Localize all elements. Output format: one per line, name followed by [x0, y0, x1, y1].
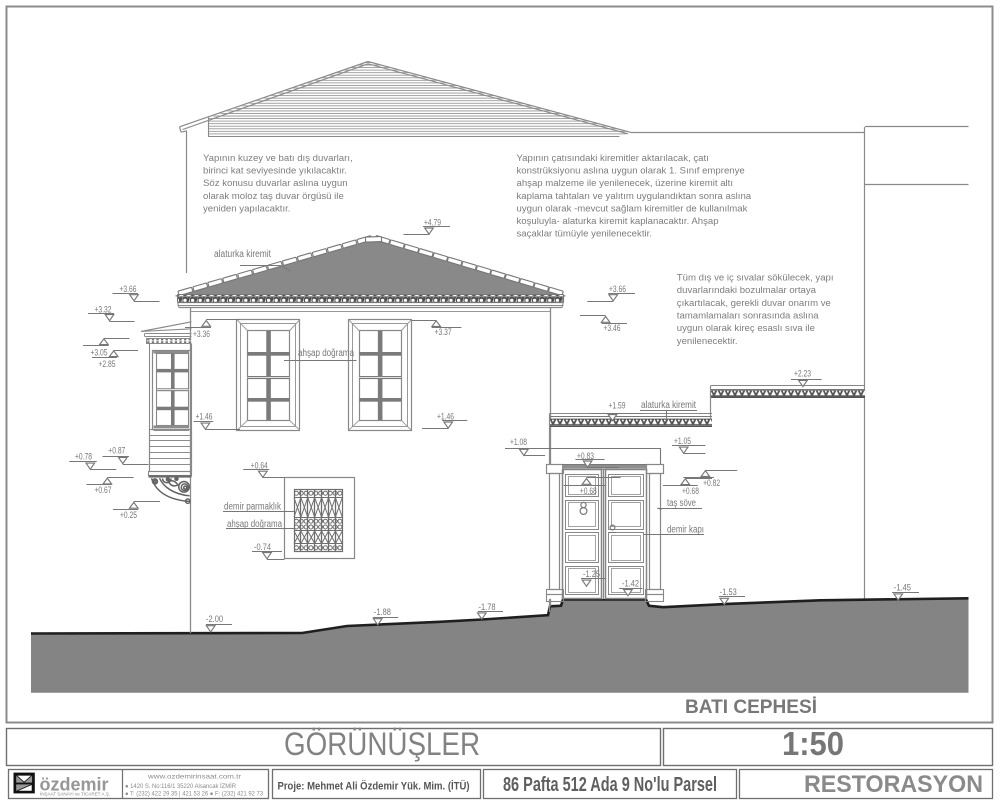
svg-text:yenilenecektir.: yenilenecektir.: [677, 336, 738, 347]
svg-text:+2.85: +2.85: [99, 359, 116, 369]
svg-text:+1.05: +1.05: [674, 436, 691, 446]
svg-text:demir parmaklık: demir parmaklık: [224, 502, 281, 513]
svg-text:birinci kat seviyesinde yıkıla: birinci kat seviyesinde yıkılacaktır.: [203, 165, 347, 176]
svg-text:-1.53: -1.53: [720, 587, 737, 597]
svg-text:+0.78: +0.78: [75, 451, 92, 461]
svg-text:+0.64: +0.64: [251, 460, 268, 470]
svg-text:BATI CEPHESİ: BATI CEPHESİ: [685, 695, 817, 718]
svg-text:İNŞAAT SANAYİ ve TİCARET A.Ş.: İNŞAAT SANAYİ ve TİCARET A.Ş.: [40, 791, 110, 797]
svg-text:+0.82: +0.82: [703, 478, 720, 488]
svg-text:yeniden yapılacaktır.: yeniden yapılacaktır.: [203, 203, 290, 214]
svg-text:+0.67: +0.67: [95, 485, 112, 495]
svg-text:-1.78: -1.78: [479, 602, 496, 612]
svg-text:-1.42: -1.42: [622, 579, 639, 589]
svg-text:olarak moloz taş duvar örgüsü: olarak moloz taş duvar örgüsü ile: [203, 191, 344, 202]
svg-text:-0.74: -0.74: [254, 542, 271, 552]
svg-text:kaplama tahtaları ve yalıtım u: kaplama tahtaları ve yalıtım uygulandıkt…: [517, 191, 752, 202]
svg-text:alaturka kiremit: alaturka kiremit: [641, 400, 696, 411]
svg-text:● 1420 S. No:116/1 35220 Alsan: ● 1420 S. No:116/1 35220 Alsancak İZMİR: [125, 783, 236, 790]
svg-text:+0.25: +0.25: [120, 510, 137, 520]
svg-text:-1.88: -1.88: [374, 607, 391, 617]
svg-text:+3.66: +3.66: [609, 284, 626, 294]
svg-text:Söz konusu duvarlar aslına uyg: Söz konusu duvarlar aslına uygun: [203, 178, 348, 189]
svg-text:+4.79: +4.79: [424, 217, 441, 227]
svg-text:+3.36: +3.36: [193, 329, 210, 339]
svg-text:+3.66: +3.66: [120, 284, 137, 294]
svg-text:+3.32: +3.32: [95, 304, 112, 314]
svg-text:saçaklar tümüyle yenilenecekti: saçaklar tümüyle yenilenecektir.: [517, 229, 652, 240]
svg-text:-1.25: -1.25: [583, 569, 600, 579]
svg-text:+1.46: +1.46: [196, 412, 213, 422]
svg-text:● T: (232) 422 29 35 | 421 53: ● T: (232) 422 29 35 | 421 53 26 ● F: (2…: [125, 790, 264, 797]
svg-text:Yapının çatısındaki kiremitler: Yapının çatısındaki kiremitler aktarılac…: [517, 153, 709, 164]
svg-text:demir kapı: demir kapı: [667, 525, 704, 536]
svg-text:RESTORASYON: RESTORASYON: [804, 772, 983, 798]
svg-text:+3.46: +3.46: [604, 323, 621, 333]
svg-text:+1.59: +1.59: [609, 400, 626, 410]
svg-text:+0.68: +0.68: [580, 486, 597, 496]
svg-text:86 Pafta 512 Ada 9 No'lu Parse: 86 Pafta 512 Ada 9 No'lu Parsel: [503, 774, 717, 796]
svg-text:çıkartılacak, gerekli duvar on: çıkartılacak, gerekli duvar onarım ve: [677, 298, 831, 309]
svg-text:-2.00: -2.00: [206, 614, 223, 624]
svg-text:-1.45: -1.45: [894, 583, 911, 593]
svg-text:uygun olarak kireç esaslı sıva: uygun olarak kireç esaslı sıva ile: [677, 323, 815, 334]
svg-text:taş söve: taş söve: [667, 498, 696, 509]
svg-text:+3.37: +3.37: [435, 327, 452, 337]
svg-text:konstrüksiyonu aslına uygun o: konstrüksiyonu aslına uygun olarak 1. Sı…: [517, 165, 745, 176]
svg-text:+0.87: +0.87: [108, 446, 125, 456]
svg-text:Yapının kuzey ve batı dış duva: Yapının kuzey ve batı dış duvarları,: [203, 153, 353, 164]
svg-text:koşuluyla- alaturka kiremit ka: koşuluyla- alaturka kiremit kaplanacaktı…: [517, 216, 719, 227]
svg-text:www.ozdemirinsaat.com.tr: www.ozdemirinsaat.com.tr: [147, 774, 242, 781]
svg-text:duvarlarındaki bozulmalar orta: duvarlarındaki bozulmalar ortaya: [677, 285, 817, 296]
svg-text:alaturka kiremit: alaturka kiremit: [214, 249, 271, 260]
svg-text:+2.23: +2.23: [794, 369, 811, 379]
svg-text:Tüm dış ve iç sıvalar sökülece: Tüm dış ve iç sıvalar sökülecek, yapı: [677, 272, 834, 283]
svg-text:tamamlamaları sonrasında aslın: tamamlamaları sonrasında aslına: [677, 311, 820, 322]
svg-text:GÖRÜNÜŞLER: GÖRÜNÜŞLER: [284, 726, 480, 762]
svg-text:+0.68: +0.68: [682, 486, 699, 496]
svg-text:uygun olarak -mevcut sağlam ki: uygun olarak -mevcut sağlam kiremitler d…: [517, 203, 748, 214]
svg-text:+1.08: +1.08: [510, 437, 527, 447]
svg-text:ahşap doğrama: ahşap doğrama: [298, 348, 354, 359]
svg-text:+3.05: +3.05: [91, 348, 108, 358]
svg-text:Proje: Mehmet Ali Özdemir Yük.: Proje: Mehmet Ali Özdemir Yük. Mim. (İTÜ…: [278, 780, 470, 793]
svg-text:1:50: 1:50: [782, 725, 844, 762]
svg-text:ahşap malzeme ile yenilenecek,: ahşap malzeme ile yenilenecek, üzerine k…: [517, 178, 734, 189]
